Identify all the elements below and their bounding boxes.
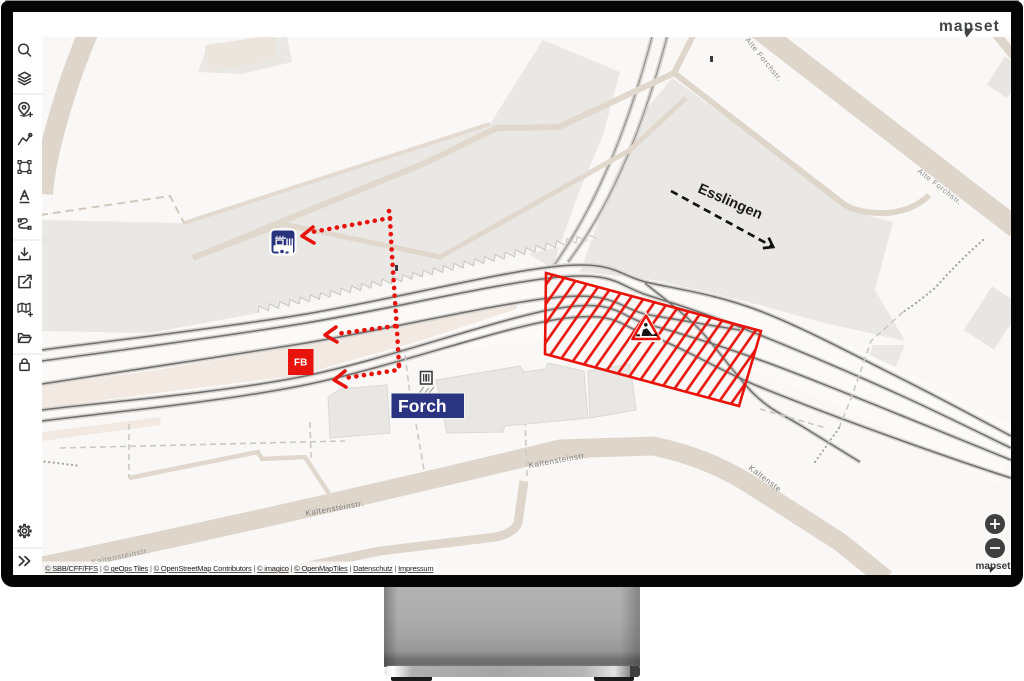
svg-text:© SBB/CFF/FFS | © geOps Tiles: © SBB/CFF/FFS | © geOps Tiles | © OpenSt…: [45, 564, 433, 573]
svg-text:mapset: mapset: [976, 561, 1012, 572]
svg-text:Forch: Forch: [398, 396, 447, 416]
svg-text:FB: FB: [294, 358, 307, 369]
